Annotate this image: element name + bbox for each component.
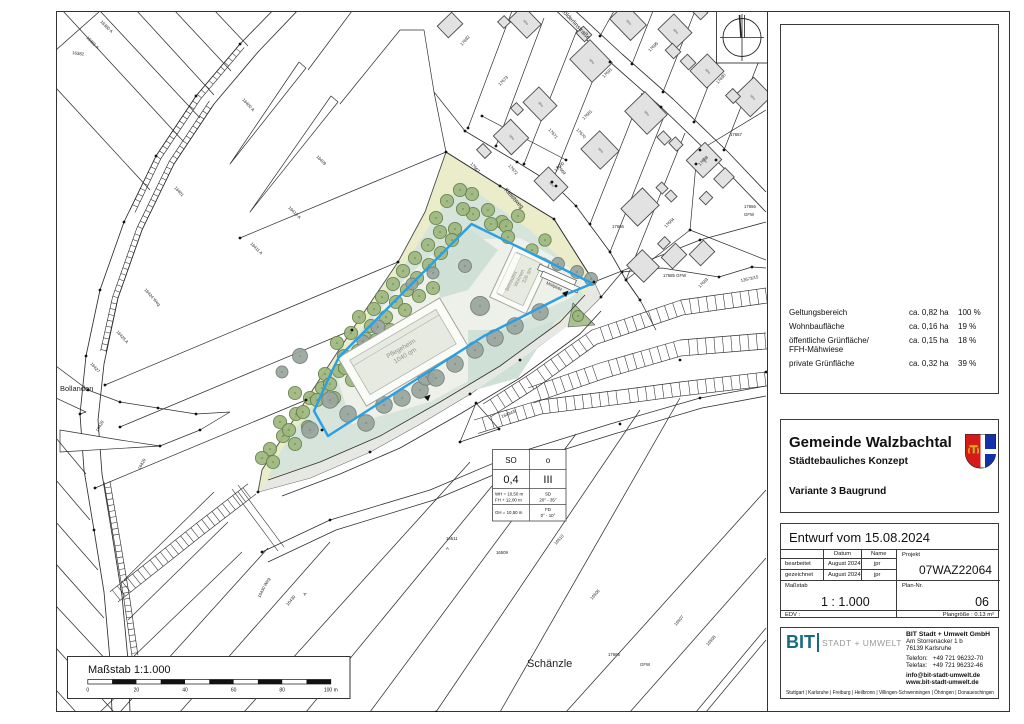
svg-text:16510: 16510 <box>553 533 565 546</box>
svg-text:17672: 17672 <box>507 163 519 176</box>
svg-text:16424 Weg: 16424 Weg <box>143 287 162 307</box>
svg-text:Hölderlinstraße: Hölderlinstraße <box>559 7 592 41</box>
svg-text:16430 Weg: 16430 Weg <box>256 576 271 598</box>
svg-text:A: A <box>446 546 449 551</box>
svg-text:17670: 17670 <box>575 127 587 140</box>
svg-text:17671: 17671 <box>547 127 559 140</box>
svg-text:40: 40 <box>182 688 188 694</box>
svg-text:WH = 10,50 m: WH = 10,50 m <box>495 492 524 497</box>
svg-text:16511: 16511 <box>446 536 458 541</box>
svg-text:A: A <box>302 591 308 597</box>
svg-text:17657: 17657 <box>730 132 743 137</box>
svg-text:III: III <box>543 474 552 486</box>
svg-text:16507: 16507 <box>673 614 685 627</box>
svg-text:FD: FD <box>545 507 551 512</box>
svg-text:16427: 16427 <box>89 361 101 374</box>
svg-text:17683: 17683 <box>697 276 709 288</box>
svg-text:16411 A: 16411 A <box>249 241 264 256</box>
svg-text:80: 80 <box>279 688 285 694</box>
svg-text:16400 A: 16400 A <box>241 97 256 112</box>
svg-text:SO: SO <box>505 456 517 465</box>
svg-text:0,4: 0,4 <box>503 474 518 486</box>
svg-text:Schänzle: Schänzle <box>527 658 572 670</box>
svg-text:17695: 17695 <box>647 40 659 52</box>
svg-text:GFW: GFW <box>640 662 651 667</box>
svg-text:16401: 16401 <box>173 185 185 198</box>
svg-text:GH = 10,50 m: GH = 10,50 m <box>495 510 523 515</box>
svg-text:17685: 17685 <box>608 652 621 657</box>
svg-text:17666: 17666 <box>612 224 625 229</box>
svg-text:FH + 12,00 m: FH + 12,00 m <box>495 498 522 503</box>
svg-text:16425 A: 16425 A <box>115 329 129 344</box>
svg-text:16509: 16509 <box>496 550 509 555</box>
svg-text:17685 GFW: 17685 GFW <box>663 273 687 278</box>
svg-text:0° - 10°: 0° - 10° <box>541 513 556 518</box>
svg-text:16381 A: 16381 A <box>85 35 100 50</box>
svg-text:17656: 17656 <box>744 204 757 209</box>
svg-text:20: 20 <box>134 688 140 694</box>
svg-text:Maßstab 1:1.000: Maßstab 1:1.000 <box>88 664 171 676</box>
svg-text:17684: 17684 <box>663 216 675 228</box>
svg-text:16409: 16409 <box>315 154 327 166</box>
svg-text:16508: 16508 <box>705 634 717 647</box>
svg-text:17681: 17681 <box>581 108 593 120</box>
svg-text:0: 0 <box>86 688 89 694</box>
svg-text:16429: 16429 <box>137 457 148 470</box>
svg-text:16506: 16506 <box>589 588 601 601</box>
svg-text:100 m: 100 m <box>324 688 338 694</box>
svg-text:20° - 35°: 20° - 35° <box>539 498 556 503</box>
svg-text:12673/15: 12673/15 <box>740 274 759 283</box>
svg-text:16430: 16430 <box>285 594 297 607</box>
svg-text:o: o <box>546 456 551 465</box>
svg-text:17673: 17673 <box>497 74 509 86</box>
svg-text:Bollanden: Bollanden <box>60 384 93 393</box>
svg-text:SD: SD <box>545 492 551 497</box>
svg-text:60: 60 <box>231 688 237 694</box>
svg-text:16380 A: 16380 A <box>99 19 114 34</box>
svg-text:16382: 16382 <box>72 50 85 57</box>
svg-text:GFW: GFW <box>744 212 755 217</box>
svg-text:16428: 16428 <box>95 419 106 432</box>
svg-text:17692: 17692 <box>459 34 471 47</box>
